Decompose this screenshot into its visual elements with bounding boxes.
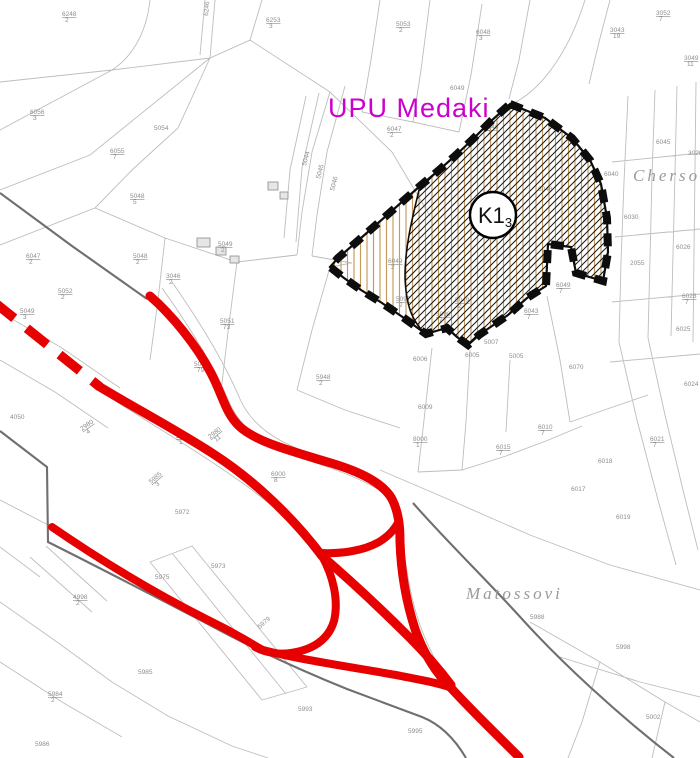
- parcel-number: 5988: [530, 614, 545, 621]
- parcel-number: 50482: [133, 253, 148, 266]
- parcel-number: 6030: [624, 214, 639, 221]
- dark-boundary-line-nw: [0, 193, 147, 299]
- building-footprints: [197, 182, 288, 263]
- parcel-number: 505173: [220, 318, 235, 331]
- cadastral-map: 6248262466253350532604833043193052730491…: [0, 0, 700, 758]
- parcel-number: 60107: [538, 424, 553, 437]
- parcel-number: 60472: [26, 253, 41, 266]
- parcel-number: 5985: [138, 669, 153, 676]
- dark-lines: [0, 193, 674, 758]
- parcel-number: 6026: [676, 244, 691, 251]
- parcel-number: 60217: [650, 436, 665, 449]
- parcel-number: 6049: [450, 85, 465, 92]
- parcel-number: 60563: [30, 109, 45, 122]
- plan-title-label: UPU Medaki: [328, 93, 490, 123]
- parcel-number: 60497: [556, 282, 571, 295]
- place-name-chersoli: Chersoli: [633, 166, 700, 185]
- planned-road-main: [150, 296, 519, 757]
- parcel-number: 6024: [684, 381, 699, 388]
- parcel-number: 304911: [684, 55, 699, 68]
- parcel-number: 5993: [298, 706, 313, 713]
- parcel-number: 60437: [524, 308, 539, 321]
- parcel-number: 6006: [413, 356, 428, 363]
- zone-k1: [330, 104, 608, 345]
- parcel-number: 5046: [329, 175, 340, 191]
- interchange-loop: [255, 556, 336, 654]
- parcel-number: 59853: [148, 471, 168, 491]
- parcel-number: 50485: [130, 193, 145, 206]
- parcel-number: 5995: [408, 728, 423, 735]
- parcel-number: 3028: [688, 150, 700, 157]
- parcel-number: 5975: [155, 574, 170, 581]
- parcel-number: 62482: [62, 11, 77, 24]
- parcel-number: 4050: [10, 414, 25, 421]
- parcel-number: 5002: [646, 714, 661, 721]
- parcel-number: 304319: [610, 27, 625, 40]
- parcel-number: 5054: [154, 125, 169, 132]
- parcel-number: 5973: [211, 563, 226, 570]
- parcel-number: 5972: [175, 509, 190, 516]
- parcel-number: 6070: [569, 364, 584, 371]
- parcel-number: 59842: [48, 691, 63, 704]
- parcel-number: 6246: [203, 1, 211, 16]
- parcel-number: 5979: [257, 615, 273, 630]
- planned-road-south: [52, 527, 452, 688]
- parcel-number: 298011: [207, 426, 227, 445]
- parcel-number: 6017: [571, 486, 586, 493]
- parcel-number: 6009: [418, 404, 433, 411]
- parcel-number: 62533: [266, 17, 281, 30]
- parcel-number: 6018: [598, 458, 613, 465]
- parcel-number: 50493: [20, 308, 35, 321]
- parcel-number: 49982: [73, 594, 88, 607]
- parcel-number: 60557: [110, 148, 125, 161]
- parcel-number: 2055: [630, 260, 645, 267]
- parcel-number: 60287: [682, 293, 697, 306]
- parcel-number: 5986: [35, 741, 50, 748]
- parcel-number: 50522: [58, 288, 73, 301]
- parcel-number: 6019: [616, 514, 631, 521]
- parcel-number: 5007: [484, 339, 499, 346]
- parcel-number: 6005: [465, 352, 480, 359]
- parcel-number: 60472: [387, 126, 402, 139]
- parcel-number: 6025: [676, 326, 691, 333]
- planned-road-dashed-segment: [0, 302, 100, 387]
- interchange-ramp: [320, 521, 399, 553]
- parcel-number: 5998: [616, 644, 631, 651]
- parcel-number: 30527: [656, 10, 671, 23]
- zone-badge: K13: [470, 192, 516, 238]
- dark-boundary-line-se: [413, 503, 674, 758]
- parcel-number: 80001: [413, 436, 428, 449]
- parcel-number: 60483: [476, 29, 491, 42]
- parcel-number: 29804: [79, 418, 99, 437]
- cadastral-map-view: 6248262466253350532604833043193052730491…: [0, 0, 700, 758]
- dark-boundary-line-west: [0, 431, 466, 758]
- parcel-number: 6040: [604, 171, 619, 178]
- place-name-matossovi: Matossovi: [465, 584, 563, 603]
- planned-roads: [0, 296, 519, 757]
- parcel-number: 50532: [396, 21, 411, 34]
- parcel-number: 5005: [509, 353, 524, 360]
- parcel-number: 59482: [316, 374, 331, 387]
- parcel-number: 60008: [271, 471, 286, 484]
- parcel-number: 6045: [656, 139, 671, 146]
